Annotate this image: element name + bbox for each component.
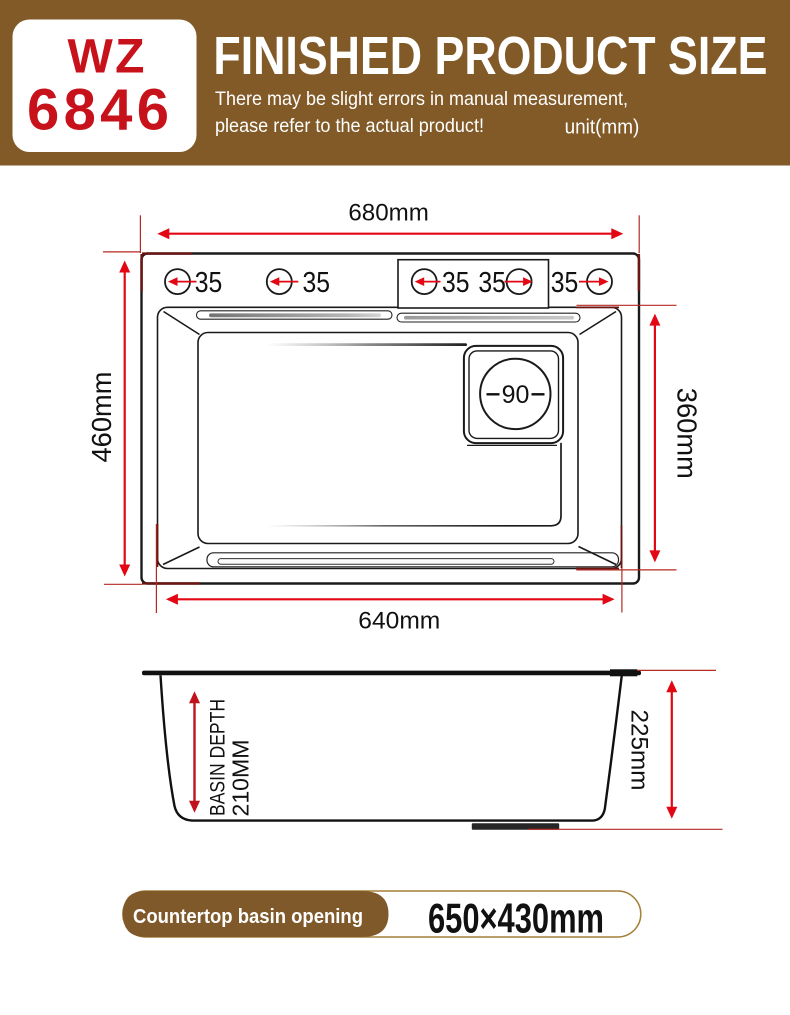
svg-text:680mm: 680mm <box>348 200 429 227</box>
svg-text:WZ: WZ <box>68 30 145 83</box>
svg-text:35: 35 <box>551 267 579 299</box>
svg-text:650×430mm: 650×430mm <box>428 895 604 942</box>
svg-text:460mm: 460mm <box>86 372 117 463</box>
svg-text:BASIN DEPTH: BASIN DEPTH <box>206 699 229 816</box>
svg-text:35: 35 <box>303 267 331 299</box>
svg-text:FINISHED PRODUCT SIZE: FINISHED PRODUCT SIZE <box>213 26 767 86</box>
svg-text:210MM: 210MM <box>228 740 254 817</box>
svg-text:360mm: 360mm <box>671 388 702 479</box>
svg-text:35: 35 <box>195 267 223 299</box>
svg-text:unit(mm): unit(mm) <box>565 117 640 139</box>
svg-text:35: 35 <box>442 267 470 299</box>
svg-text:35: 35 <box>478 267 506 299</box>
svg-text:90: 90 <box>502 381 530 409</box>
svg-text:640mm: 640mm <box>358 608 440 635</box>
svg-text:There may be slight errors in: There may be slight errors in manual mea… <box>215 88 628 110</box>
svg-text:225mm: 225mm <box>626 710 653 791</box>
svg-text:please refer to the actual pro: please refer to the actual product! <box>215 115 484 137</box>
svg-text:Countertop basin opening: Countertop basin opening <box>133 905 363 928</box>
